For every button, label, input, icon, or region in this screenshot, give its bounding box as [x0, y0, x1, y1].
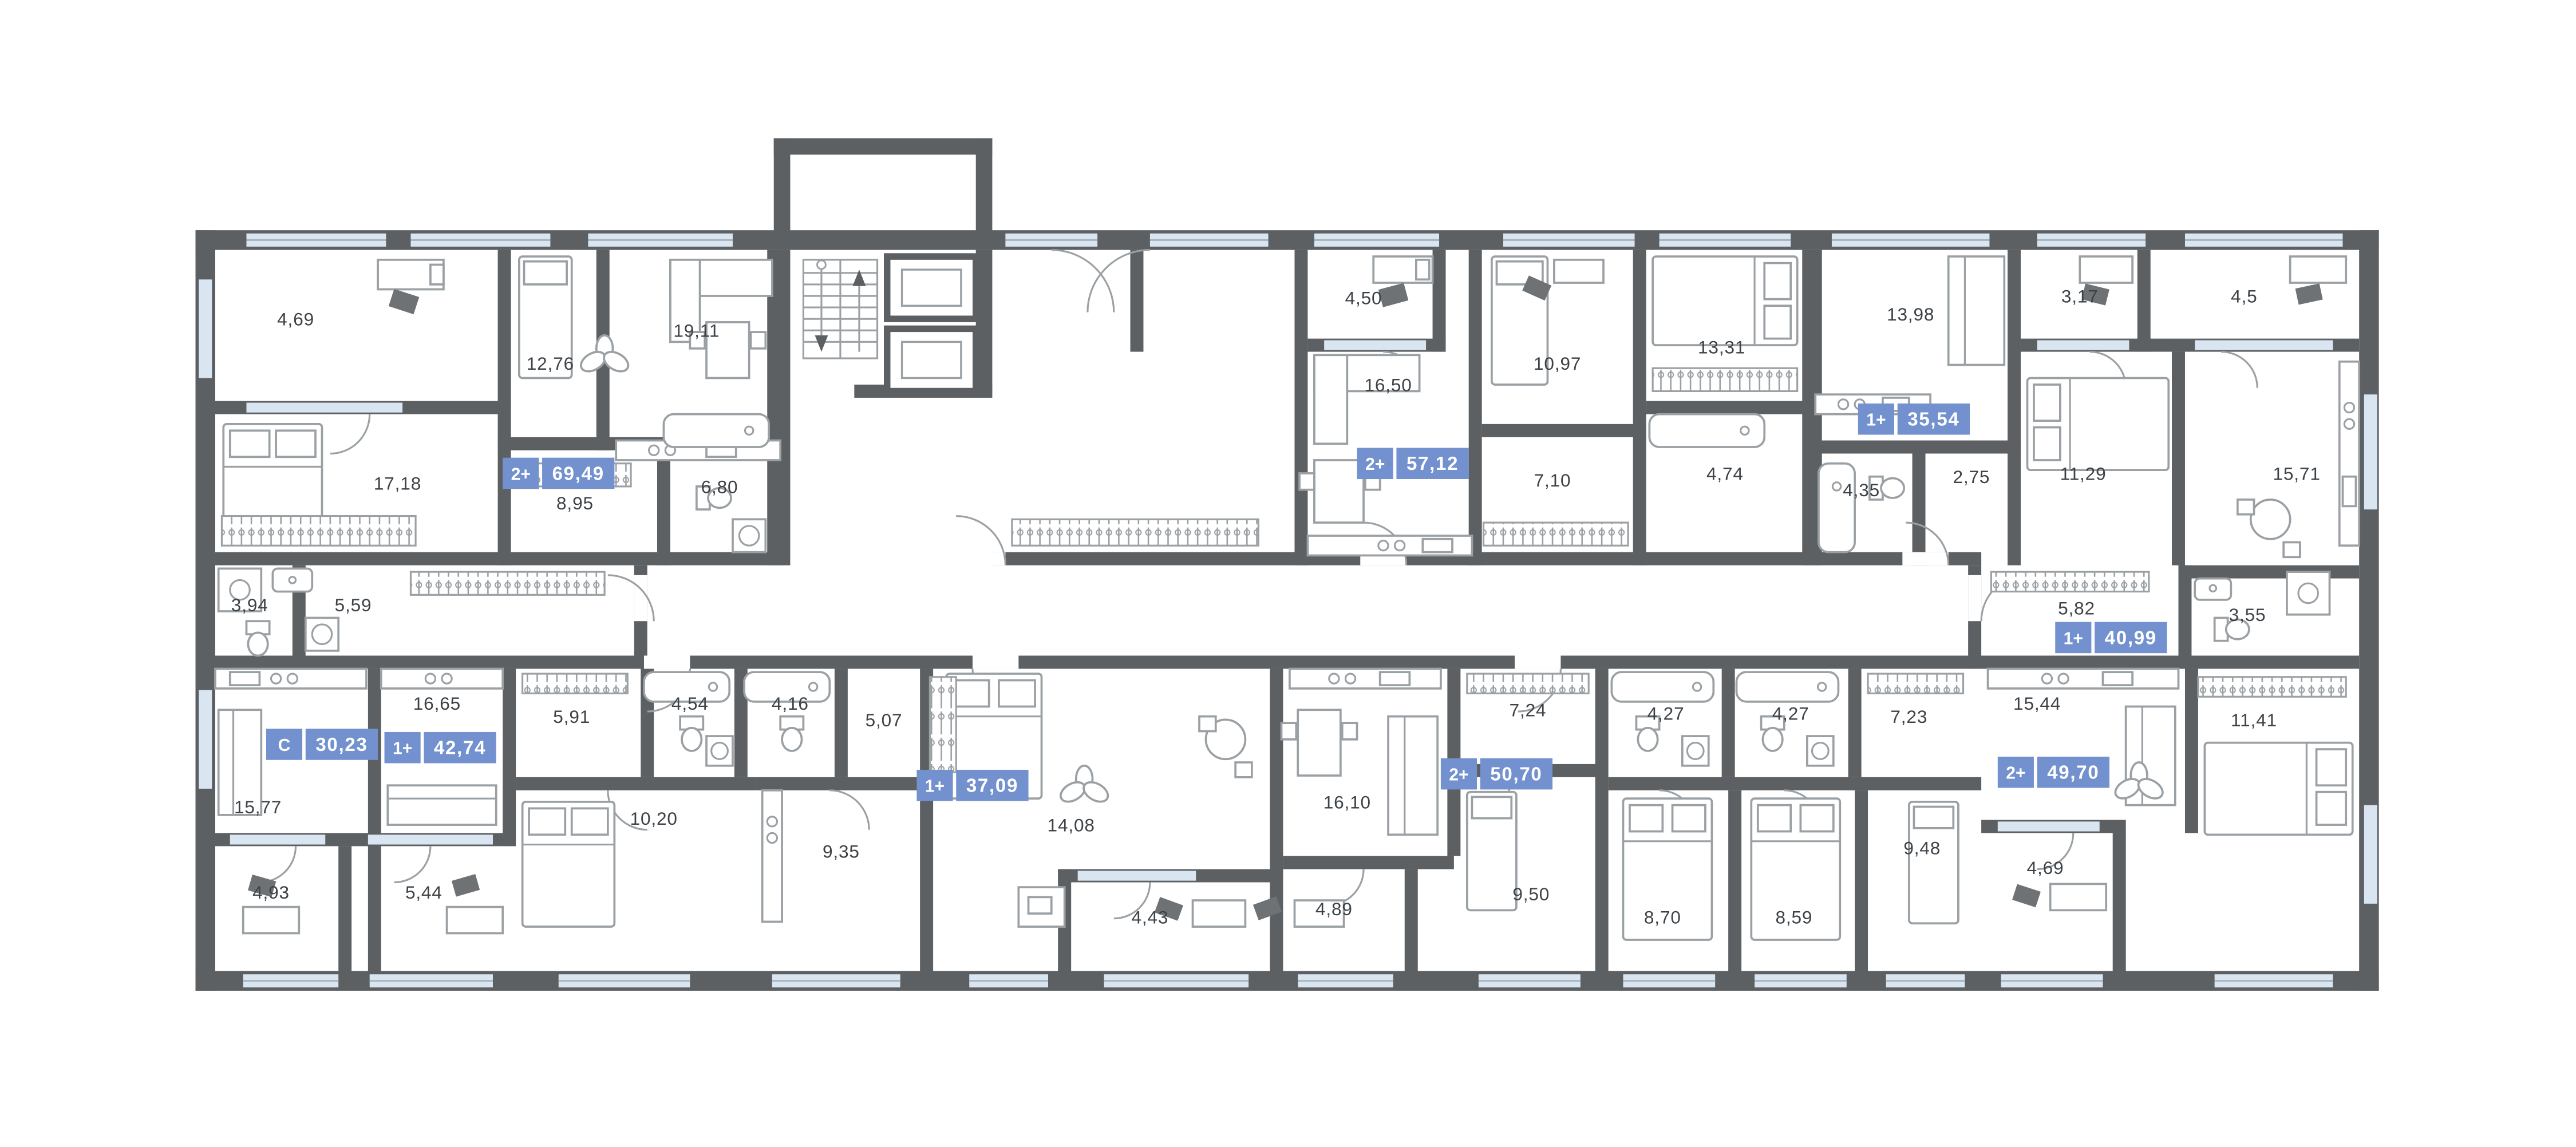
unit-area-label: 50,70: [1490, 764, 1542, 785]
room-area-label: 7,23: [1890, 706, 1927, 727]
room-area-label: 13,31: [1698, 337, 1745, 357]
room-area-label: 5,59: [335, 595, 372, 615]
room-area-label: 4,35: [1843, 480, 1880, 500]
room-area-label: 5,82: [2058, 598, 2095, 619]
room-area-label: 12,76: [527, 353, 574, 374]
kitchen-counter: [1988, 669, 2179, 688]
plant: [1057, 766, 1111, 806]
sink: [272, 568, 312, 591]
unit-badge[interactable]: 2+69,49: [503, 458, 614, 489]
washing-machine: [706, 736, 733, 766]
room-area-label: 8,70: [1644, 907, 1681, 927]
room-area-label: 10,20: [630, 808, 678, 829]
unit-type-label: 2+: [1449, 766, 1468, 785]
unit-area-label: 69,49: [552, 462, 605, 484]
kitchen-counter: [381, 669, 503, 688]
room-area-label: 4,74: [1706, 463, 1744, 484]
unit-type-label: 2+: [511, 465, 531, 484]
unit-badge[interactable]: 1+35,54: [1858, 404, 1970, 435]
unit-badge[interactable]: 2+57,12: [1357, 448, 1469, 479]
room-area-label: 15,44: [2013, 693, 2061, 714]
room-area-label: 4,69: [277, 309, 314, 330]
room-area-label: 11,41: [2231, 710, 2277, 730]
unit-badge[interactable]: 1+42,74: [385, 732, 496, 764]
bed-double: [2027, 378, 2168, 470]
kitchen-counter: [215, 669, 366, 688]
room-area-label: 10,97: [1534, 353, 1581, 374]
toilet: [780, 717, 803, 751]
staircase: [803, 260, 877, 358]
unit-type-label: 1+: [393, 739, 412, 758]
wardrobe: [1868, 674, 1963, 693]
room-area-label: 4,54: [671, 693, 709, 714]
washing-machine: [306, 618, 338, 650]
unit-badge[interactable]: С30,23: [266, 729, 378, 760]
wardrobe: [1653, 368, 1797, 391]
bathtub: [1819, 464, 1855, 552]
room-area-label: 4,27: [1647, 703, 1685, 723]
wardrobe: [1991, 572, 2149, 591]
unit-area-label: 57,12: [1406, 453, 1459, 474]
stair-arrow-down: [815, 260, 828, 352]
elevator-2: [887, 329, 976, 391]
room-area-label: 16,65: [413, 693, 461, 714]
kitchen-counter: [2340, 362, 2359, 545]
stair-arrow-up: [852, 270, 866, 351]
bed-double: [523, 802, 615, 927]
unit-type-label: 1+: [1866, 411, 1886, 430]
unit-type-label: С: [278, 736, 291, 755]
bathtub: [1611, 672, 1713, 702]
room-area-label: 17,18: [374, 473, 421, 494]
toilet: [680, 717, 703, 751]
room-area-label: 4,69: [2027, 857, 2064, 878]
room-area-label: 4,50: [1345, 287, 1382, 308]
wardrobe: [1012, 519, 1258, 545]
unit-area-label: 49,70: [2047, 762, 2099, 783]
dining-table: [1199, 717, 1252, 777]
room-area-label: 4,16: [772, 693, 809, 714]
room-area-label: 19,11: [673, 321, 720, 341]
room-area-label: 4,5: [2231, 286, 2257, 306]
unit-area-label: 42,74: [434, 737, 486, 758]
sofa: [1314, 355, 1420, 444]
washing-machine: [733, 519, 765, 552]
sink: [2195, 579, 2231, 600]
floor-plan-page: 4,6912,7619,1117,188,956,804,5016,5010,9…: [0, 0, 2576, 1147]
desk: [447, 874, 503, 933]
wardrobe: [410, 572, 605, 595]
wardrobe: [1484, 523, 1629, 545]
wardrobe: [222, 516, 416, 546]
room-area-label: 3,55: [2229, 604, 2266, 625]
unit-type-label: 1+: [925, 777, 945, 796]
room-area-label: 5,07: [866, 710, 903, 730]
wardrobe: [930, 677, 956, 772]
unit-type-label: 2+: [2006, 764, 2025, 783]
room-area-label: 5,44: [405, 882, 442, 903]
unit-area-label: 37,09: [966, 775, 1018, 796]
unit-type-label: 1+: [2064, 629, 2083, 648]
unit-area-label: 30,23: [315, 734, 368, 755]
room-area-label: 3,94: [231, 595, 268, 615]
unit-badge[interactable]: 2+50,70: [1441, 758, 1552, 790]
unit-badge[interactable]: 1+40,99: [2055, 622, 2167, 654]
unit-badge[interactable]: 2+49,70: [1998, 757, 2109, 788]
room-area-label: 3,17: [2061, 286, 2099, 306]
kitchen-counter: [762, 790, 782, 922]
elevators: [887, 256, 976, 391]
room-area-label: 9,48: [1903, 838, 1941, 859]
room-area-label: 8,59: [1776, 907, 1813, 927]
bed-double: [2204, 743, 2352, 835]
desk: [378, 260, 444, 314]
kitchen-counter: [1290, 669, 1441, 688]
wardrobe: [523, 674, 628, 693]
room-area-label: 16,10: [1323, 792, 1371, 812]
dining-table: [2238, 500, 2300, 557]
washing-machine: [1682, 736, 1709, 766]
room-area-label: 14,08: [1048, 815, 1095, 836]
room-area-label: 4,27: [1772, 703, 1809, 723]
wardrobe: [2198, 677, 2346, 697]
unit-type-label: 2+: [1365, 455, 1385, 474]
room-area-label: 2,75: [1953, 466, 1990, 487]
desk: [2290, 256, 2346, 304]
desk: [2012, 884, 2106, 910]
bathtub: [1649, 414, 1764, 447]
wardrobe: [1467, 674, 1589, 693]
sofa: [1949, 256, 2005, 365]
washing-machine: [1807, 736, 1834, 766]
floor-plan-canvas: 4,6912,7619,1117,188,956,804,5016,5010,9…: [0, 0, 2576, 1147]
room-area-label: 7,10: [1534, 470, 1571, 491]
toilet: [246, 621, 269, 655]
room-area-label: 4,43: [1132, 907, 1169, 927]
unit-area-label: 35,54: [1907, 409, 1959, 430]
room-area-label: 7,24: [1510, 700, 1547, 721]
room-area-label: 5,91: [553, 706, 590, 727]
unit-area-label: 40,99: [2105, 627, 2157, 648]
room-area-label: 11,29: [2060, 463, 2107, 484]
room-area-label: 16,50: [1364, 374, 1412, 395]
elevator-1: [887, 256, 976, 319]
kitchen-counter: [1307, 536, 1472, 555]
room-area-label: 13,98: [1887, 304, 1934, 325]
room-area-label: 9,50: [1512, 884, 1550, 904]
bed-single: [1909, 802, 1958, 923]
dining-table: [1282, 710, 1357, 776]
desk: [1373, 256, 1432, 307]
room-area-label: 4,93: [252, 882, 290, 903]
sofa: [388, 785, 496, 825]
shower: [2287, 572, 2330, 615]
bed-double: [1653, 256, 1797, 345]
bathtub: [663, 414, 769, 447]
room-area-label: 8,95: [556, 493, 594, 513]
desk: [1018, 887, 1064, 927]
sofa: [1388, 717, 1437, 835]
room-area-label: 15,77: [234, 797, 282, 817]
bed-single: [1467, 792, 1516, 911]
room-area-label: 6,80: [701, 476, 738, 497]
room-area-label: 4,89: [1315, 899, 1353, 919]
unit-badge[interactable]: 1+37,09: [916, 770, 1028, 801]
room-area-label: 15,71: [2273, 463, 2320, 484]
bathtub: [1736, 672, 1838, 702]
room-area-label: 9,35: [823, 841, 860, 861]
